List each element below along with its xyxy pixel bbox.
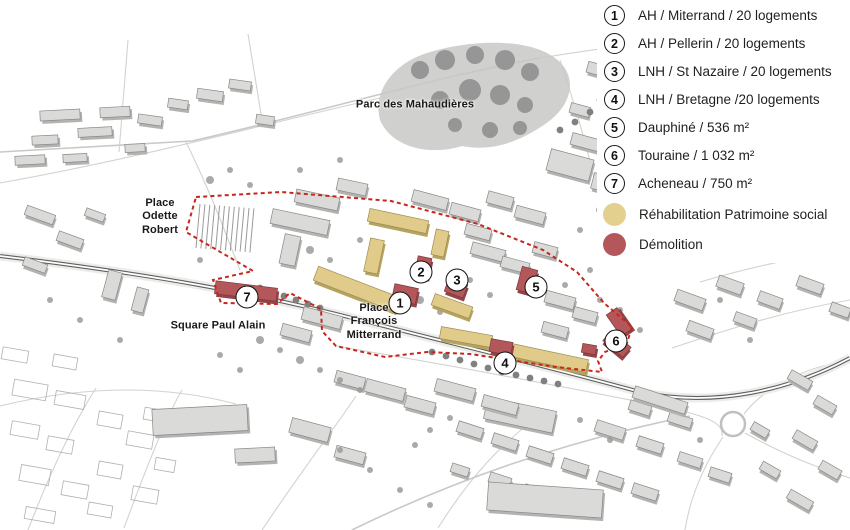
legend-item-3: 3 LNH / St Nazaire / 20 logements [604,61,850,82]
label-parc-des-mahaudieres: Parc des Mahaudières [356,98,474,111]
map-marker-3: 3 [446,269,469,292]
legend-number-badge: 2 [604,33,625,54]
legend-number-badge: 6 [604,145,625,166]
map-marker-4: 4 [494,352,517,375]
legend-swatch-demolition: Démolition [604,233,850,256]
legend-item-2: 2 AH / Pellerin / 20 logements [604,33,850,54]
legend-number-badge: 1 [604,5,625,26]
legend: 1 AH / Miterrand / 20 logements 2 AH / P… [604,5,850,263]
legend-item-label: LNH / Bretagne /20 logements [638,92,820,107]
legend-swatches: Réhabilitation Patrimoine social Démolit… [604,203,850,256]
map-marker-7: 7 [236,286,259,309]
legend-item-1: 1 AH / Miterrand / 20 logements [604,5,850,26]
roundabout [721,412,745,436]
rehabilitation-color-swatch [603,203,626,226]
legend-swatch-label: Démolition [639,237,703,252]
legend-item-label: Dauphiné / 536 m² [638,120,749,135]
map-marker-2: 2 [410,261,433,284]
legend-item-7: 7 Acheneau / 750 m² [604,173,850,194]
legend-item-4: 4 LNH / Bretagne /20 logements [604,89,850,110]
legend-item-5: 5 Dauphiné / 536 m² [604,117,850,138]
park-mahaudieres [378,43,570,150]
map-marker-5: 5 [525,276,548,299]
legend-number-badge: 4 [604,89,625,110]
legend-item-label: Acheneau / 750 m² [638,176,752,191]
label-place-odette-robert: Place Odette Robert [142,197,178,237]
legend-item-label: LNH / St Nazaire / 20 logements [638,64,832,79]
legend-number-badge: 5 [604,117,625,138]
legend-item-6: 6 Touraine / 1 032 m² [604,145,850,166]
legend-item-label: Touraine / 1 032 m² [638,148,754,163]
label-square-paul-alain: Square Paul Alain [171,319,266,332]
demolition-color-swatch [603,233,626,256]
legend-swatch-label: Réhabilitation Patrimoine social [639,207,827,222]
map-marker-6: 6 [605,330,628,353]
parking-hatch [196,204,254,252]
parcel-outlines [1,347,176,524]
legend-number-badge: 3 [604,61,625,82]
legend-item-label: AH / Pellerin / 20 logements [638,36,805,51]
legend-item-label: AH / Miterrand / 20 logements [638,8,817,23]
legend-swatch-rehabilitation: Réhabilitation Patrimoine social [604,203,850,226]
urban-renewal-plan-page: { "legend": { "items": [ {"number": "1",… [0,0,850,530]
legend-number-badge: 7 [604,173,625,194]
map-marker-1: 1 [389,292,412,315]
